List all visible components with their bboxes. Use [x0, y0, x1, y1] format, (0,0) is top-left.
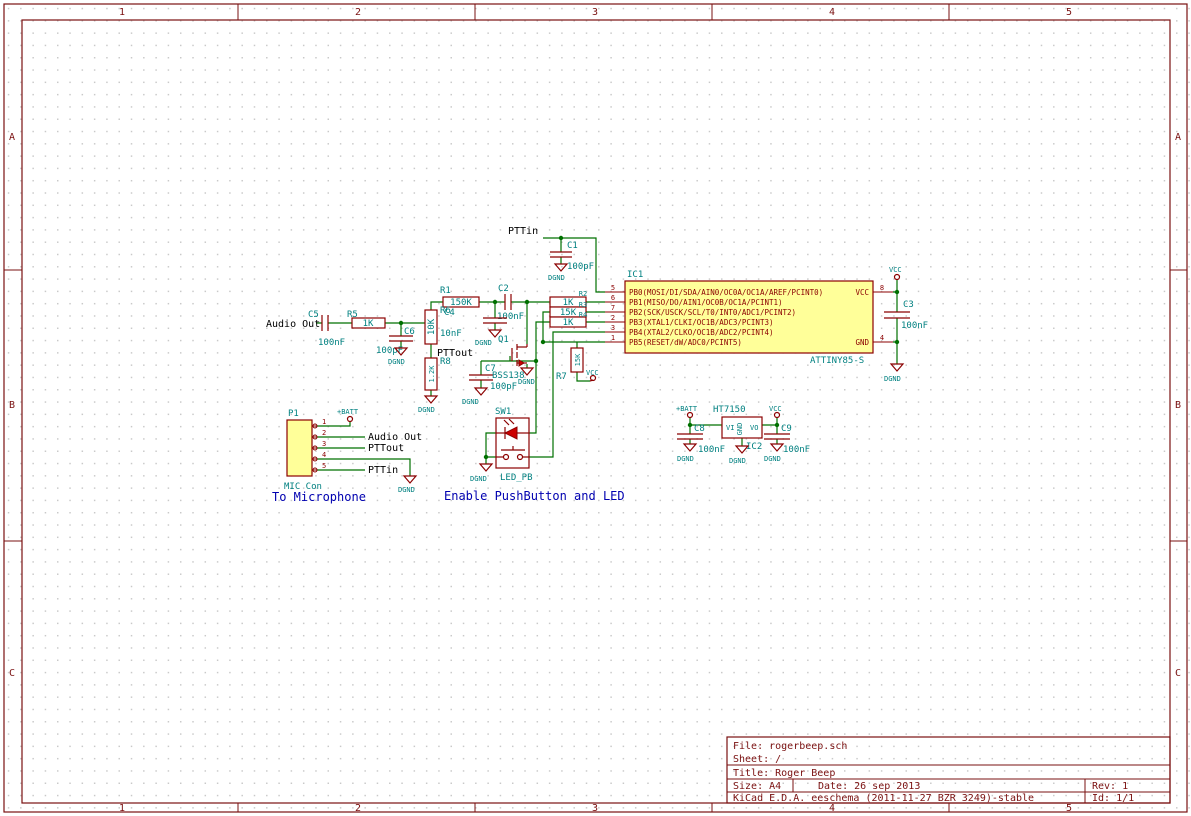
ic1-pin-num: 2 — [611, 314, 615, 322]
sw1-ref: SW1 — [495, 407, 511, 417]
c8-ref: C8 — [694, 424, 705, 434]
ic1-pin-num: 4 — [880, 334, 884, 342]
ruler-col: 3 — [592, 803, 598, 814]
r1-value: 150K — [450, 298, 472, 308]
net-label-audio-out: Audio Out — [266, 319, 320, 330]
svg-text:DGND: DGND — [462, 398, 479, 406]
p1-pin-num: 3 — [322, 440, 326, 448]
p1-pin-num: 1 — [322, 418, 326, 426]
sw1-value: LED_PB — [500, 473, 533, 483]
r7-value: 15K — [574, 353, 582, 366]
svg-text:VCC: VCC — [586, 369, 599, 377]
ruler-row: A — [9, 132, 15, 143]
r6-value: 10K — [427, 318, 437, 335]
ic2-ref: IC2 — [746, 442, 762, 452]
ruler-col: 5 — [1066, 7, 1072, 18]
ruler-row: C — [1175, 668, 1181, 679]
ruler-row: A — [1175, 132, 1181, 143]
ic1-pin-name: GND — [855, 338, 869, 347]
ic1-pin-name: PB1(MISO/DO/AIN1/OC0B/OC1A/PCINT1) — [629, 298, 783, 307]
titleblock-size: Size: A4 — [733, 781, 781, 792]
c9-ref: C9 — [781, 424, 792, 434]
r7-ref: R7 — [556, 372, 567, 382]
c2-value: 100nF — [497, 312, 524, 322]
ruler-col: 4 — [829, 7, 835, 18]
component-capacitor-c6[interactable]: C6 100pF — [376, 327, 415, 356]
component-ic1-attiny85[interactable]: IC1 ATTINY85-S PB0(MOSI/DI/SDA/AIN0/OC0A… — [605, 270, 893, 366]
c1-ref: C1 — [567, 241, 578, 251]
schematic-canvas[interactable]: 1 2 3 4 5 1 2 3 4 5 A B C A B C File: ro… — [0, 0, 1191, 816]
c8-value: 100nF — [698, 445, 725, 455]
r2-ref: R2 — [579, 290, 587, 298]
comments: To Microphone Enable PushButton and LED — [272, 489, 625, 504]
c4-value: 10nF — [440, 329, 462, 339]
net-label-pttout: PTTout — [437, 348, 473, 359]
ic1-pin-num: 7 — [611, 304, 615, 312]
ruler-row: B — [9, 400, 15, 411]
p1-ref: P1 — [288, 409, 299, 419]
svg-text:DGND: DGND — [884, 375, 901, 383]
ic2-value: HT7150 — [713, 405, 746, 415]
ruler-col: 2 — [355, 7, 361, 18]
svg-text:+BATT: +BATT — [337, 408, 359, 416]
note-to-microphone: To Microphone — [272, 490, 366, 504]
ic1-pin-num: 3 — [611, 324, 615, 332]
c3-ref: C3 — [903, 300, 914, 310]
svg-text:DGND: DGND — [677, 455, 694, 463]
svg-text:DGND: DGND — [729, 457, 746, 465]
component-resistor-r5[interactable]: R5 1K — [347, 310, 385, 329]
r3-ref: R3 — [579, 301, 587, 309]
net-label-pttout: PTTout — [368, 443, 404, 454]
c3-value: 100nF — [901, 321, 928, 331]
p1-pin-num: 4 — [322, 451, 326, 459]
net-label-pttin: PTTin — [508, 226, 538, 237]
c2-ref: C2 — [498, 284, 509, 294]
p1-pin-num: 5 — [322, 462, 326, 470]
svg-text:DGND: DGND — [518, 378, 535, 386]
ic1-pin-name: PB2(SCK/USCK/SCL/T0/INT0/ADC1/PCINT2) — [629, 308, 796, 317]
q1-ref: Q1 — [498, 335, 509, 345]
c4-ref: C4 — [444, 308, 455, 318]
titleblock-sheet: Sheet: / — [733, 754, 781, 765]
ruler-col: 2 — [355, 803, 361, 814]
r4-value: 1K — [563, 318, 574, 328]
svg-text:VCC: VCC — [889, 266, 902, 274]
ruler-col: 1 — [119, 803, 125, 814]
ic1-pin-name: PB0(MOSI/DI/SDA/AIN0/OC0A/OC1A/AREF/PCIN… — [629, 288, 823, 297]
ruler-row: B — [1175, 400, 1181, 411]
ic1-pin-num: 6 — [611, 294, 615, 302]
component-capacitor-c9[interactable]: C9 100nF — [764, 424, 810, 455]
title-block: File: rogerbeep.sch Sheet: / Title: Roge… — [727, 737, 1170, 804]
svg-text:+BATT: +BATT — [676, 405, 698, 413]
svg-text:DGND: DGND — [548, 274, 565, 282]
svg-text:VCC: VCC — [769, 405, 782, 413]
component-resistor-r7[interactable]: R7 15K — [556, 348, 583, 382]
component-capacitor-c3[interactable]: C3 100nF — [884, 300, 928, 331]
svg-text:DGND: DGND — [470, 475, 487, 483]
ic2-pin-vo: VO — [750, 424, 758, 432]
component-capacitor-c1[interactable]: C1 100pF — [550, 241, 594, 272]
c5-value: 100nF — [318, 338, 345, 348]
c6-ref: C6 — [404, 327, 415, 337]
titleblock-title: Title: Roger Beep — [733, 768, 835, 779]
titleblock-file: File: rogerbeep.sch — [733, 741, 847, 752]
c1-value: 100pF — [567, 262, 594, 272]
ic1-pin-name: PB3(XTAL1/CLKI/OC1B/ADC3/PCINT3) — [629, 318, 774, 327]
titleblock-id: Id: 1/1 — [1092, 793, 1134, 804]
ic2-pin-vi: VI — [726, 424, 734, 432]
r8-value: 1.2K — [428, 365, 436, 383]
note-enable-pushbutton: Enable PushButton and LED — [444, 489, 625, 503]
ic1-pin-num: 1 — [611, 334, 615, 342]
component-resistor-r8[interactable]: R8 1.2K — [425, 357, 451, 390]
svg-text:DGND: DGND — [418, 406, 435, 414]
net-label-audio-out: Audio Out — [368, 432, 422, 443]
svg-text:DGND: DGND — [388, 358, 405, 366]
svg-text:DGND: DGND — [764, 455, 781, 463]
ic1-pin-num: 5 — [611, 284, 615, 292]
titleblock-date: Date: 26 sep 2013 — [818, 781, 920, 792]
ruler-col: 4 — [829, 803, 835, 814]
svg-text:DGND: DGND — [398, 486, 415, 494]
ic1-pin-name: VCC — [855, 288, 869, 297]
ruler-col: 5 — [1066, 803, 1072, 814]
ic2-pin-gnd: GND — [736, 423, 744, 436]
ruler-row: C — [9, 668, 15, 679]
sheet-frame: 1 2 3 4 5 1 2 3 4 5 A B C A B C — [4, 4, 1187, 814]
component-capacitor-c8[interactable]: C8 100nF — [677, 424, 725, 455]
r5-value: 1K — [363, 319, 374, 329]
ruler-col: 1 — [119, 7, 125, 18]
c9-value: 100nF — [783, 445, 810, 455]
p1-pin-num: 2 — [322, 429, 326, 437]
ruler-col: 3 — [592, 7, 598, 18]
c7-value: 100pF — [490, 382, 517, 392]
component-resistor-r1[interactable]: R1 150K — [440, 286, 479, 308]
component-capacitor-c2[interactable]: C2 100nF — [497, 284, 524, 322]
ic1-pin-num: 8 — [880, 284, 884, 292]
ic1-pin-name: PB5(RESET/dW/ADC0/PCINT5) — [629, 338, 742, 347]
titleblock-tool: KiCad E.D.A. eeschema (2011-11-27 BZR 32… — [733, 793, 1034, 804]
r5-ref: R5 — [347, 310, 358, 320]
r1-ref: R1 — [440, 286, 451, 296]
ic1-pin-name: PB4(XTAL2/CLKO/OC1B/ADC2/PCINT4) — [629, 328, 774, 337]
component-switch-sw1[interactable]: SW1 LED_PB — [495, 407, 533, 483]
svg-text:DGND: DGND — [475, 339, 492, 347]
r4-ref: R4 — [579, 311, 587, 319]
titleblock-rev: Rev: 1 — [1092, 781, 1128, 792]
ic1-ref: IC1 — [627, 270, 643, 280]
component-connector-p1[interactable]: P1 1 2 3 4 5 MIC Con — [284, 409, 326, 492]
schematic-drawing: 1 2 3 4 5 1 2 3 4 5 A B C A B C File: ro… — [0, 0, 1191, 816]
net-label-pttin: PTTin — [368, 465, 398, 476]
ic1-value: ATTINY85-S — [810, 356, 864, 366]
